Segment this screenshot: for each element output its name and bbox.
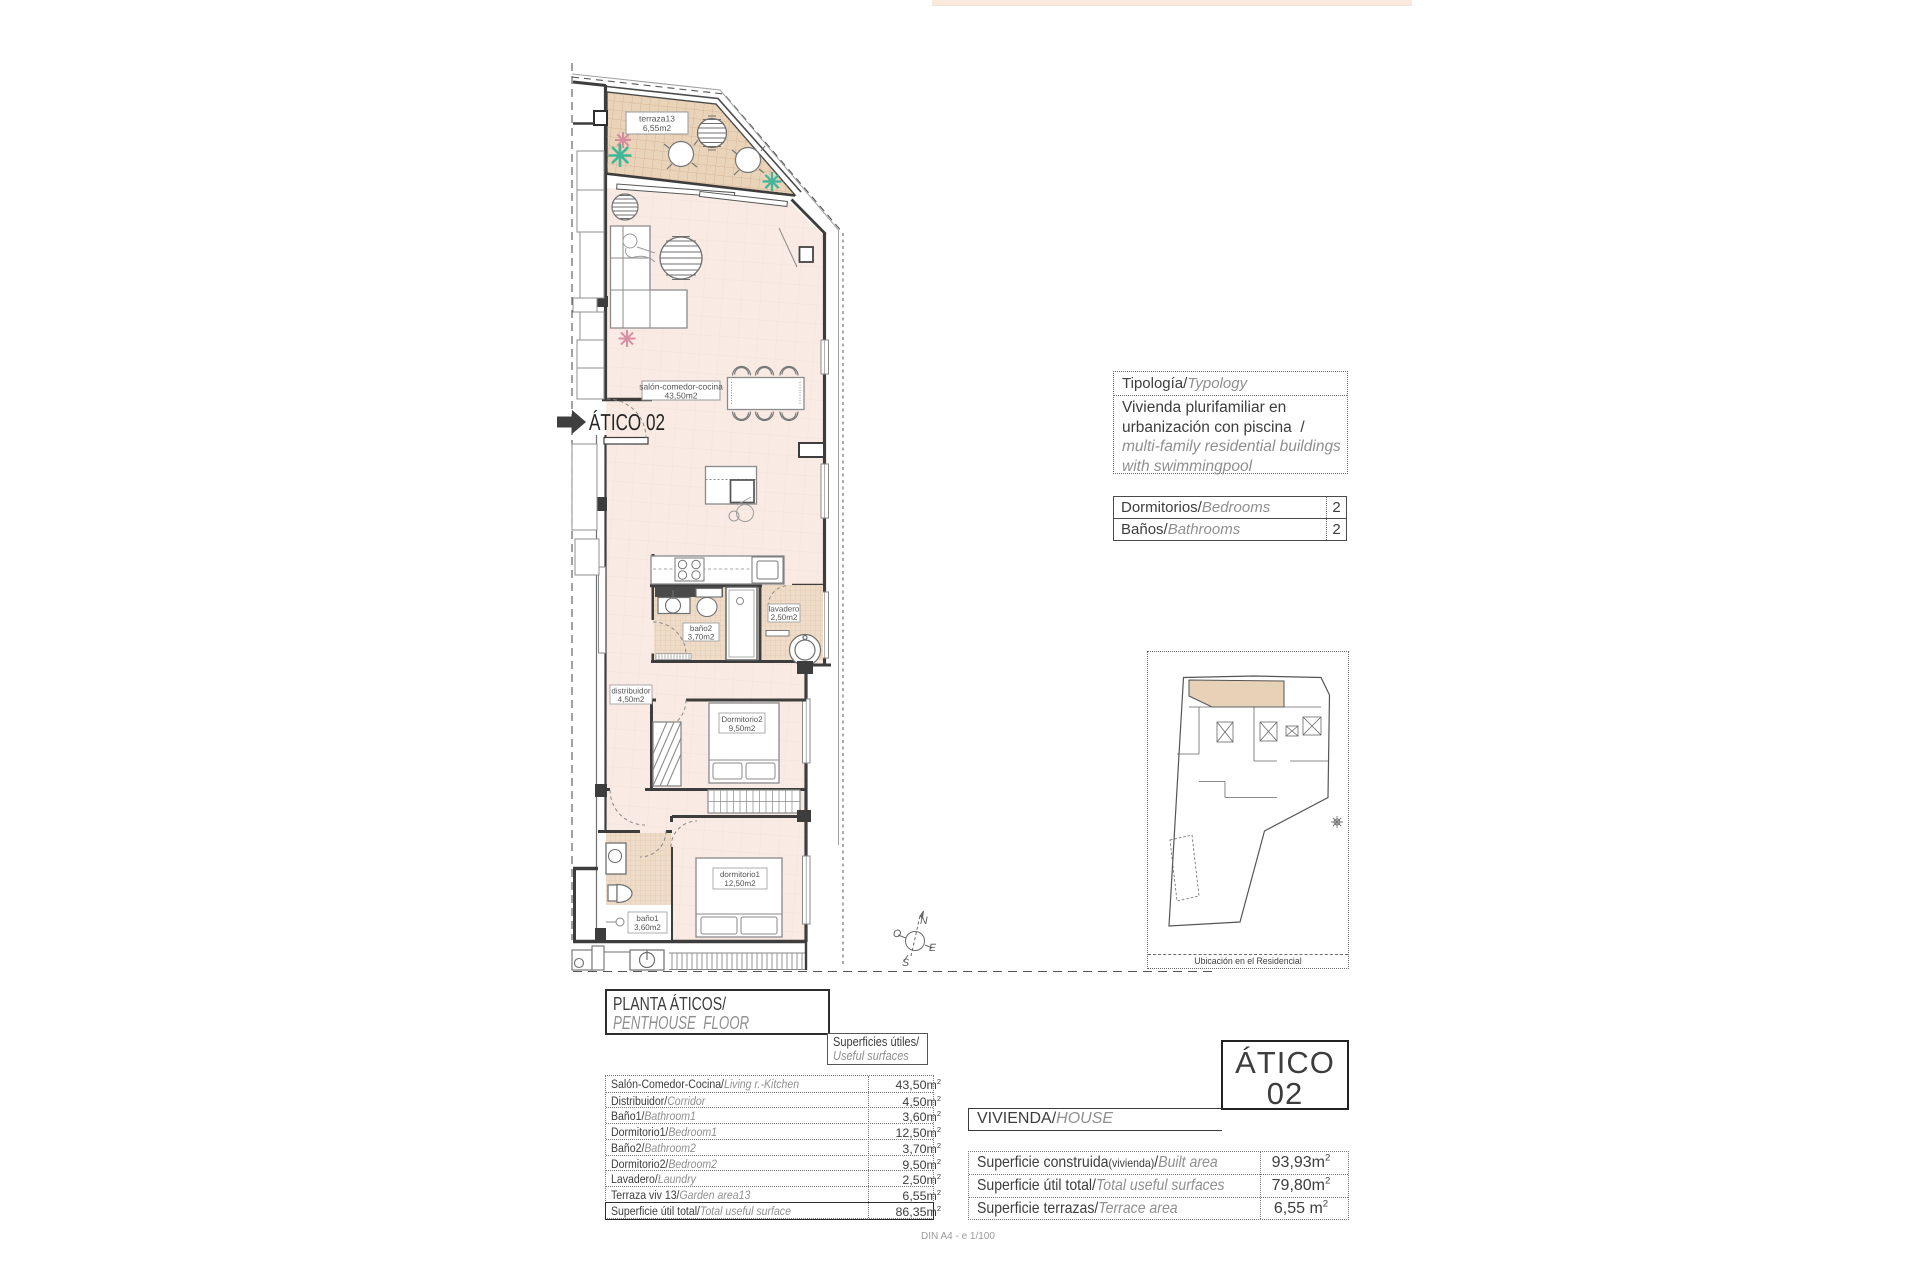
svg-text:4,50m2: 4,50m2 (618, 695, 645, 704)
svg-text:3,60m2: 3,60m2 (634, 923, 661, 932)
svg-text:12,50m2: 12,50m2 (724, 879, 756, 888)
svg-text:6,55m2: 6,55m2 (643, 123, 672, 133)
svg-text:terraza13: terraza13 (639, 114, 675, 124)
svg-text:9,50m2: 9,50m2 (729, 724, 756, 733)
svg-text:O: O (893, 928, 901, 940)
svg-text:baño1: baño1 (636, 914, 659, 923)
svg-text:2,50m2: 2,50m2 (771, 613, 798, 622)
svg-text:N: N (920, 915, 928, 927)
svg-text:ÁTICO 02: ÁTICO 02 (589, 409, 665, 435)
svg-text:3,70m2: 3,70m2 (688, 633, 715, 642)
svg-text:dormitorio1: dormitorio1 (720, 870, 761, 879)
svg-text:E: E (929, 942, 937, 954)
svg-text:43,50m2: 43,50m2 (664, 391, 697, 401)
svg-text:S: S (902, 957, 909, 969)
svg-text:Dormitorio2: Dormitorio2 (721, 715, 763, 724)
